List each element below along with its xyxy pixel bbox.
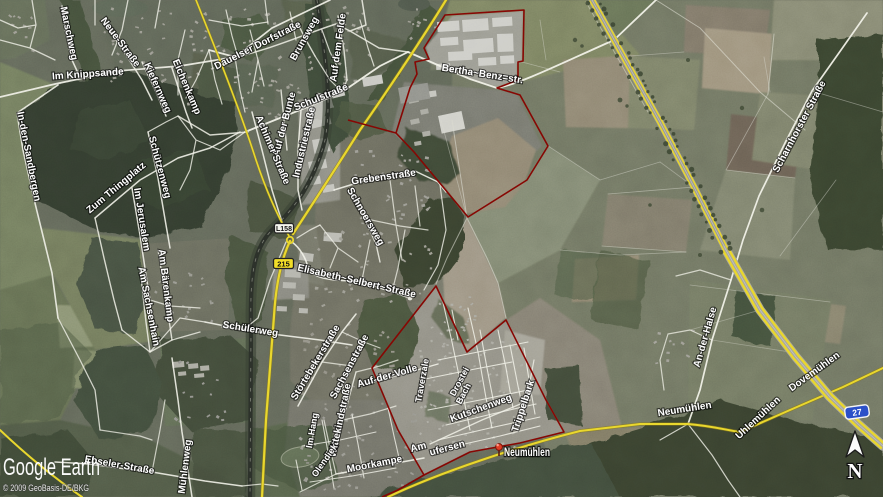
- svg-text:Google Earth: Google Earth: [3, 454, 100, 481]
- svg-text:27: 27: [852, 407, 863, 418]
- svg-text:N: N: [847, 459, 862, 483]
- svg-text:215: 215: [277, 260, 290, 269]
- svg-text:Neumühlen: Neumühlen: [504, 447, 550, 459]
- svg-text:© 2009 GeoBasis-DE/BKG: © 2009 GeoBasis-DE/BKG: [3, 483, 89, 494]
- svg-text:L158: L158: [276, 226, 292, 233]
